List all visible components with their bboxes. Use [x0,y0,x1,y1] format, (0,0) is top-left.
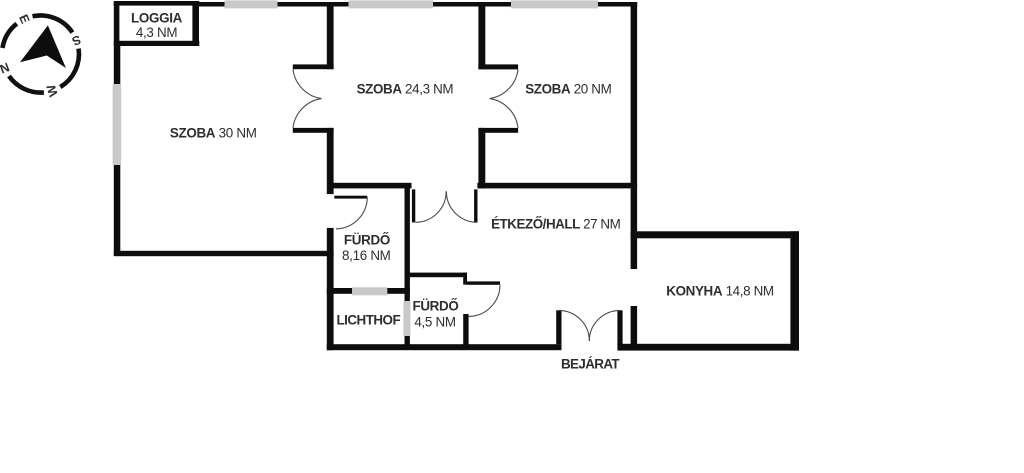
svg-text:FÜRDŐ: FÜRDŐ [344,233,390,248]
svg-text:LICHTHOF: LICHTHOF [336,312,400,327]
svg-text:KONYHA 14,8 NM: KONYHA 14,8 NM [666,284,774,299]
svg-text:LOGGIA: LOGGIA [131,10,183,25]
svg-text:SZOBA 30 NM: SZOBA 30 NM [170,126,257,141]
svg-text:SZOBA 20 NM: SZOBA 20 NM [525,82,611,97]
svg-text:FÜRDŐ: FÜRDŐ [412,299,458,314]
svg-text:BEJÁRAT: BEJÁRAT [561,356,620,371]
svg-text:ÉTKEZŐ/HALL 27 NM: ÉTKEZŐ/HALL 27 NM [491,217,621,232]
svg-text:4,3 NM: 4,3 NM [136,25,178,40]
svg-text:8,16 NM: 8,16 NM [342,248,391,263]
svg-text:SZOBA 24,3 NM: SZOBA 24,3 NM [357,82,454,97]
svg-text:4,5 NM: 4,5 NM [414,315,456,330]
